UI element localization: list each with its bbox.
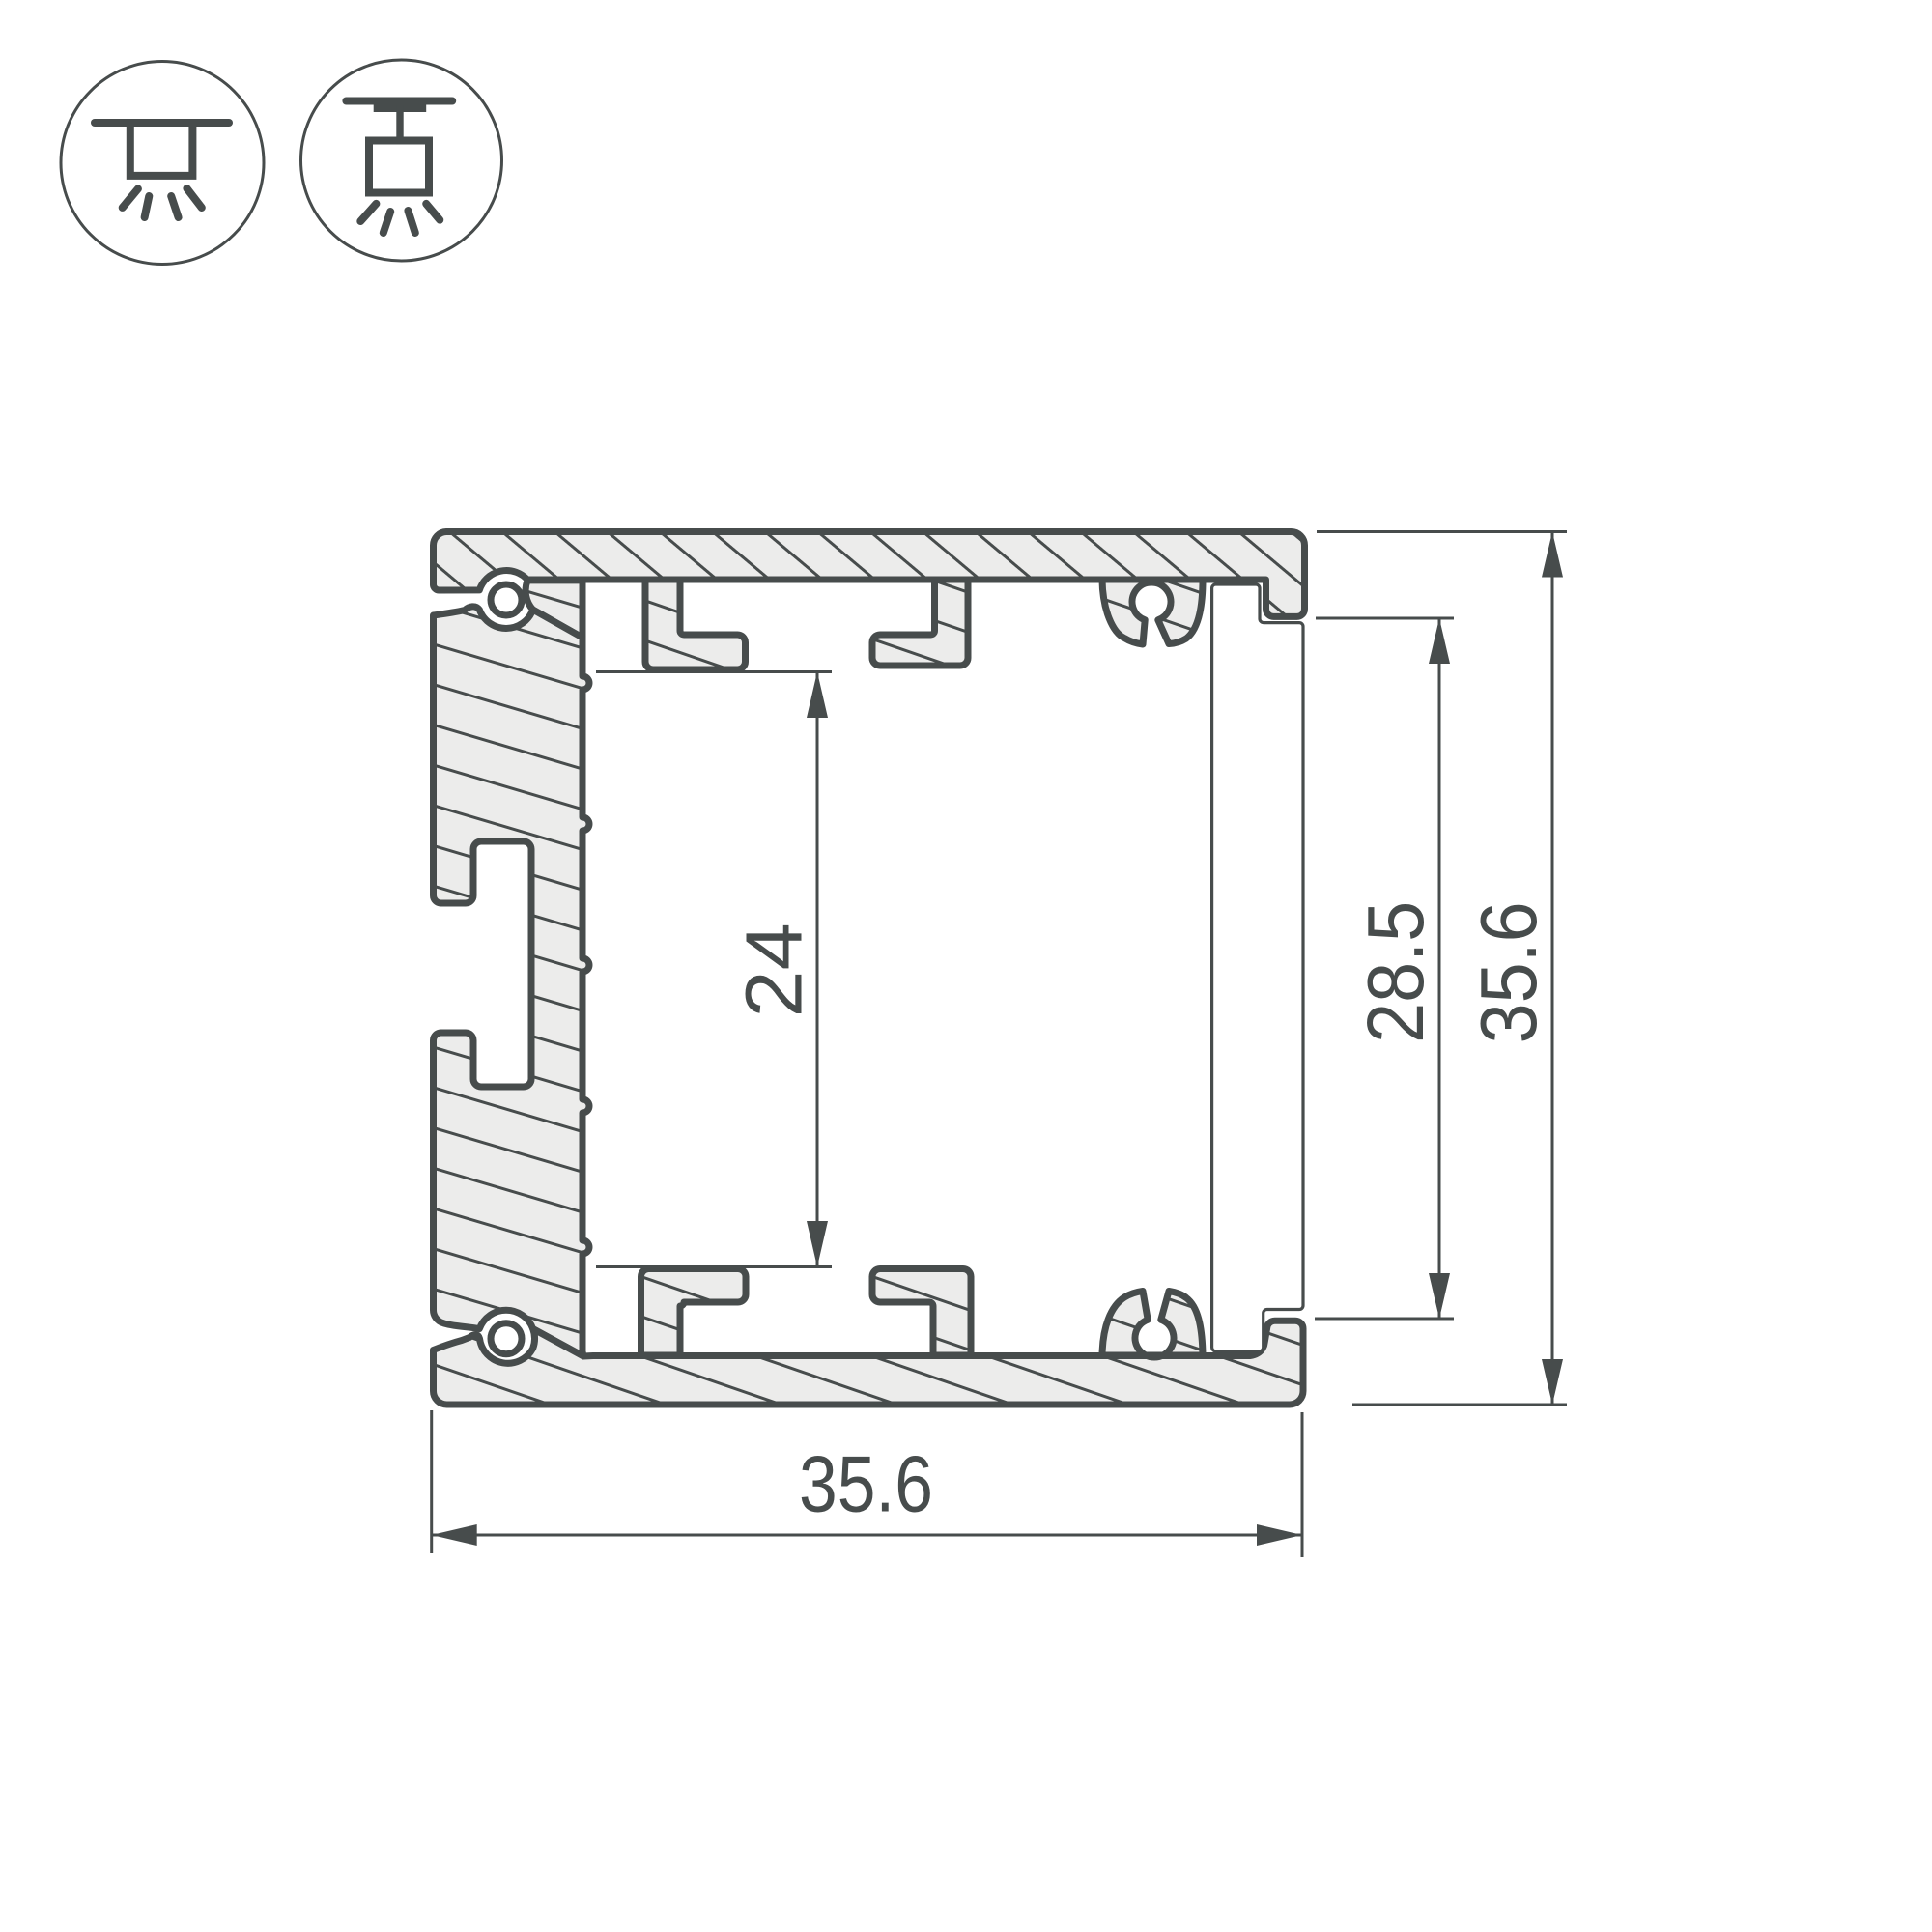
- svg-text:28.5: 28.5: [1351, 901, 1440, 1043]
- svg-text:24: 24: [729, 923, 818, 1017]
- svg-text:35.6: 35.6: [799, 1440, 933, 1529]
- svg-text:35.6: 35.6: [1464, 901, 1553, 1043]
